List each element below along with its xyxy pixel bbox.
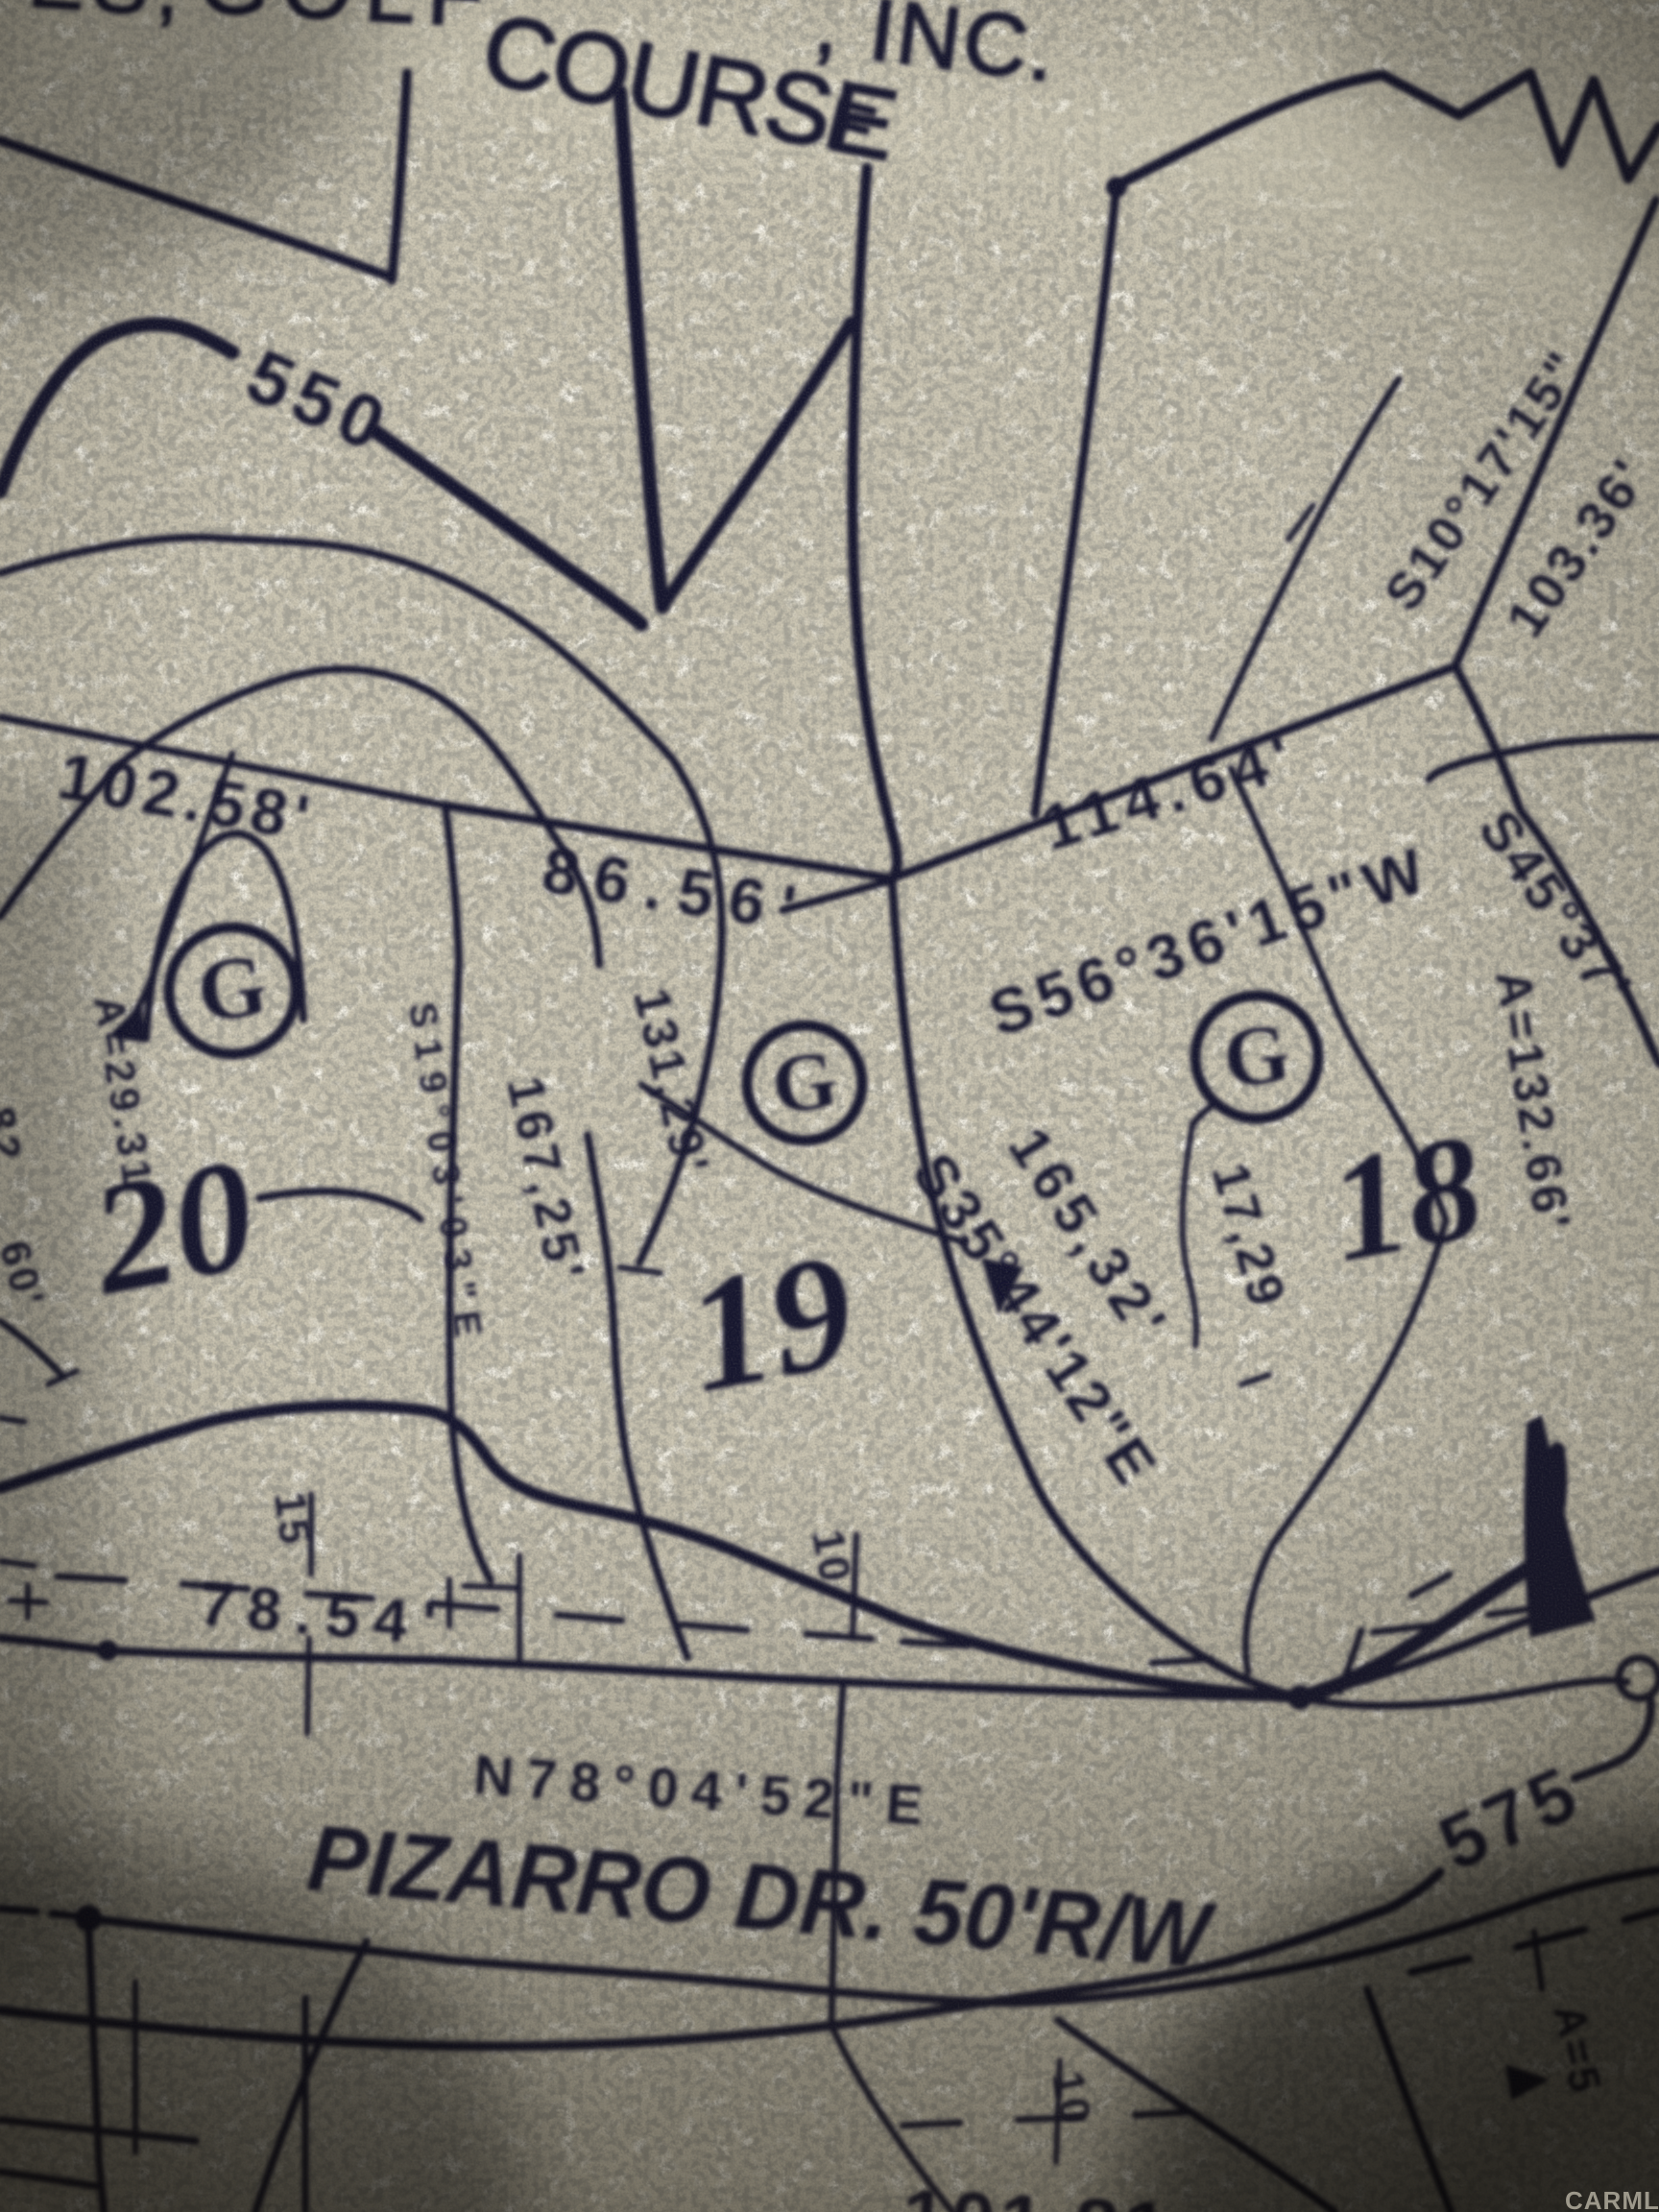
svg-text:CARMLS, INC: CARMLS, INC <box>1565 2186 1659 2212</box>
